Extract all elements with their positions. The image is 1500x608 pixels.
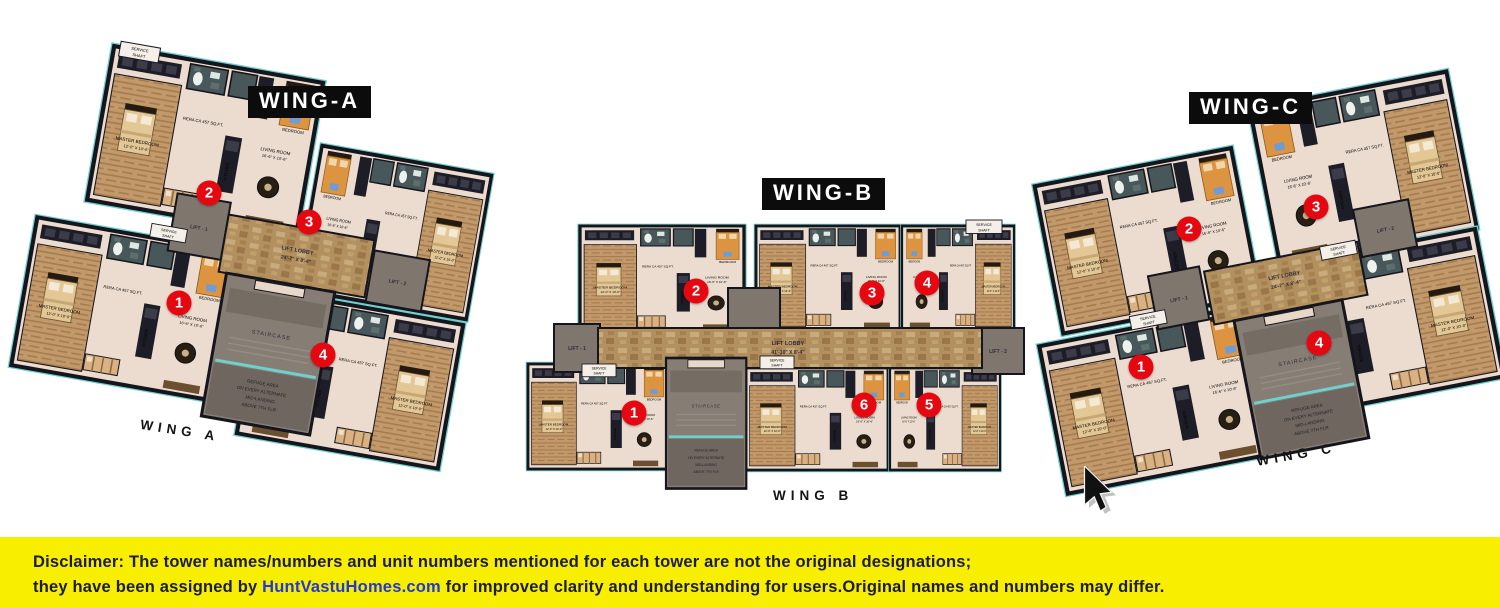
wing-a-unit-marker-4[interactable]: 4 — [311, 343, 336, 368]
lift-2-label: LIFT - 2 — [989, 349, 1007, 355]
wing-c-unit-marker-3[interactable]: 3 — [1304, 195, 1329, 220]
wing-b-unit-marker-3[interactable]: 3 — [860, 281, 885, 306]
wing-c-unit-marker-4[interactable]: 4 — [1307, 331, 1332, 356]
wing-c-unit-marker-1[interactable]: 1 — [1129, 355, 1154, 380]
disclaimer-bar: Disclaimer: The tower names/numbers and … — [0, 537, 1500, 608]
disclaimer-line-2: they have been assigned by HuntVastuHome… — [33, 575, 1480, 600]
wing-b-unit-marker-4[interactable]: 4 — [915, 271, 940, 296]
wing-a-unit-marker-3[interactable]: 3 — [297, 210, 322, 235]
service-duct-block — [728, 288, 780, 330]
wing-b-title: WING-B — [762, 178, 885, 210]
mouse-cursor-icon — [1080, 466, 1122, 525]
wing-b-unit-marker-6[interactable]: 6 — [852, 393, 877, 418]
wing-c-title: WING-C — [1189, 92, 1312, 124]
wing-c-unit-marker-2[interactable]: 2 — [1177, 217, 1202, 242]
huntvastuhomes-link[interactable]: HuntVastuHomes.com — [262, 578, 441, 596]
lift-lobby-dim: 41'-10" X 8'-4" — [771, 350, 805, 356]
lift-1-label: LIFT - 1 — [568, 346, 586, 352]
wing-c-floorplan: LIFT LOBBY 24'-7" X 8'-4" LIFT - 1 LIFT … — [1000, 66, 1500, 498]
wing-b-unit-marker-1[interactable]: 1 — [622, 401, 647, 426]
wing-b-caption: WING B — [773, 488, 853, 503]
disclaimer-label: Disclaimer: — [33, 553, 124, 571]
wing-b-floorplan: LIFT LOBBY 41'-10" X 8'-4" LIFT - 1 LIFT… — [520, 218, 1028, 490]
wing-a-title: WING-A — [248, 86, 371, 118]
wing-b-unit-marker-2[interactable]: 2 — [684, 279, 709, 304]
lift-lobby-label: LIFT LOBBY — [772, 341, 805, 347]
wing-a-unit-marker-1[interactable]: 1 — [167, 291, 192, 316]
wing-b-unit-marker-5[interactable]: 5 — [917, 393, 942, 418]
wing-a-unit-marker-2[interactable]: 2 — [197, 181, 222, 206]
disclaimer-line-1: Disclaimer: The tower names/numbers and … — [33, 550, 1480, 575]
disclaimer-text: Disclaimer: The tower names/numbers and … — [0, 537, 1500, 600]
